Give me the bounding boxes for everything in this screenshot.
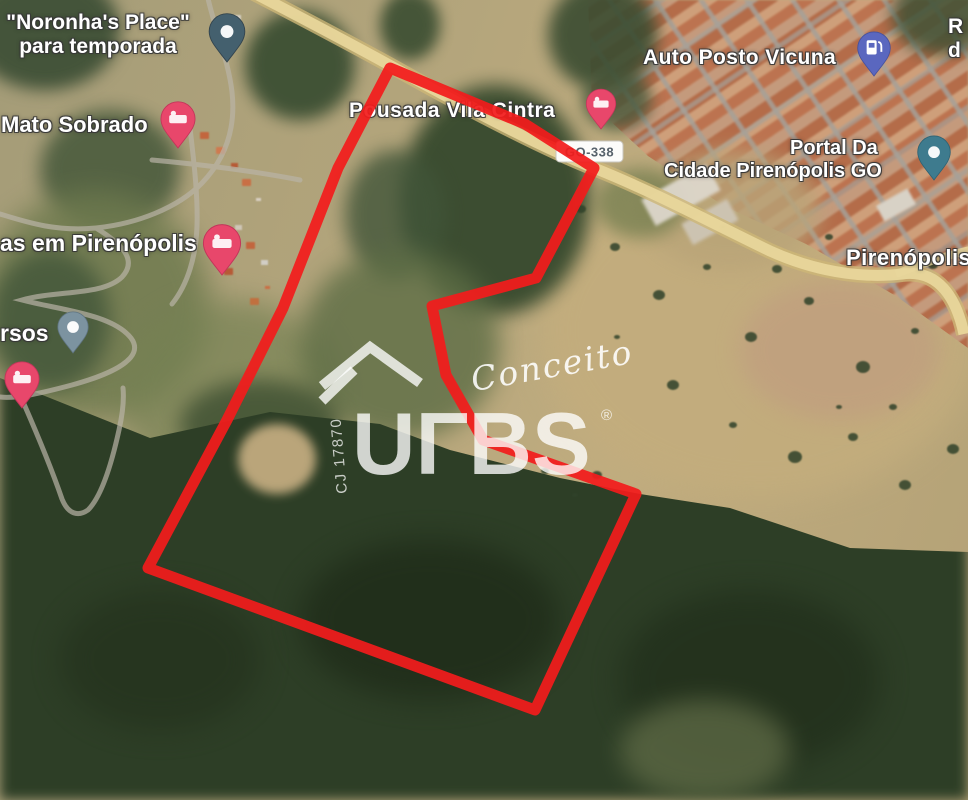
poi-dot-icon xyxy=(67,321,79,333)
satellite-map[interactable]: GO-338 "Noronha's Place" para temporada … xyxy=(0,0,968,800)
map-pin-auto-posto-gas[interactable] xyxy=(858,32,891,76)
map-pin-noronhas-place[interactable] xyxy=(209,14,245,62)
map-pin-mato-sobrado[interactable] xyxy=(161,102,195,148)
map-pin-rsos[interactable] xyxy=(58,312,88,353)
parcel-outline[interactable] xyxy=(148,68,636,710)
map-pin-casas-em-pirenopolis[interactable] xyxy=(203,225,240,275)
poi-dot-icon xyxy=(221,25,234,38)
map-pin-portal-da-cidade[interactable] xyxy=(918,136,951,180)
poi-dot-icon xyxy=(928,146,940,158)
map-pin-pousada-vila-cintra[interactable] xyxy=(586,89,615,129)
overlay-layer xyxy=(0,0,968,800)
map-pin-lodging-bottom-left[interactable] xyxy=(5,362,39,408)
